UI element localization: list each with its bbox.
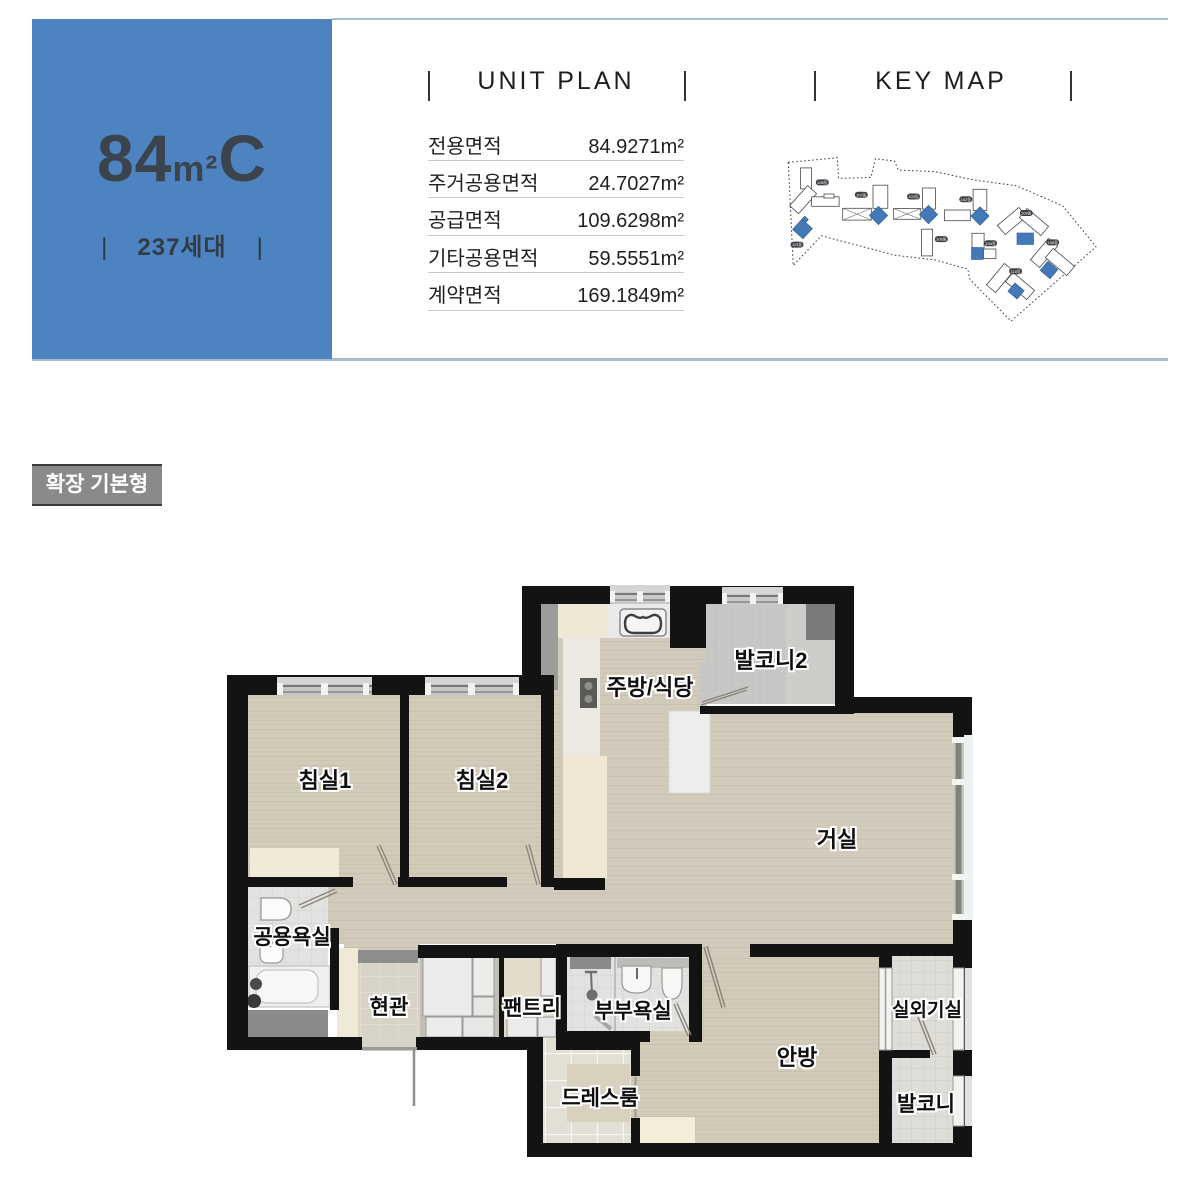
svg-text:침실2: 침실2 — [456, 768, 509, 793]
svg-text:주방/식당: 주방/식당 — [606, 675, 693, 700]
svg-text:현관: 현관 — [370, 996, 409, 1019]
svg-text:팬트리: 팬트리 — [503, 997, 561, 1020]
svg-text:실외기실: 실외기실 — [892, 999, 962, 1021]
svg-text:거실: 거실 — [817, 827, 857, 852]
svg-text:부부욕실: 부부욕실 — [594, 1000, 671, 1023]
svg-text:침실1: 침실1 — [299, 768, 352, 793]
svg-text:드레스룸: 드레스룸 — [561, 1087, 638, 1110]
svg-text:발코니2: 발코니2 — [735, 648, 808, 673]
svg-text:안방: 안방 — [777, 1045, 817, 1070]
svg-text:발코니: 발코니 — [897, 1093, 955, 1116]
svg-text:공용욕실: 공용욕실 — [253, 926, 330, 949]
